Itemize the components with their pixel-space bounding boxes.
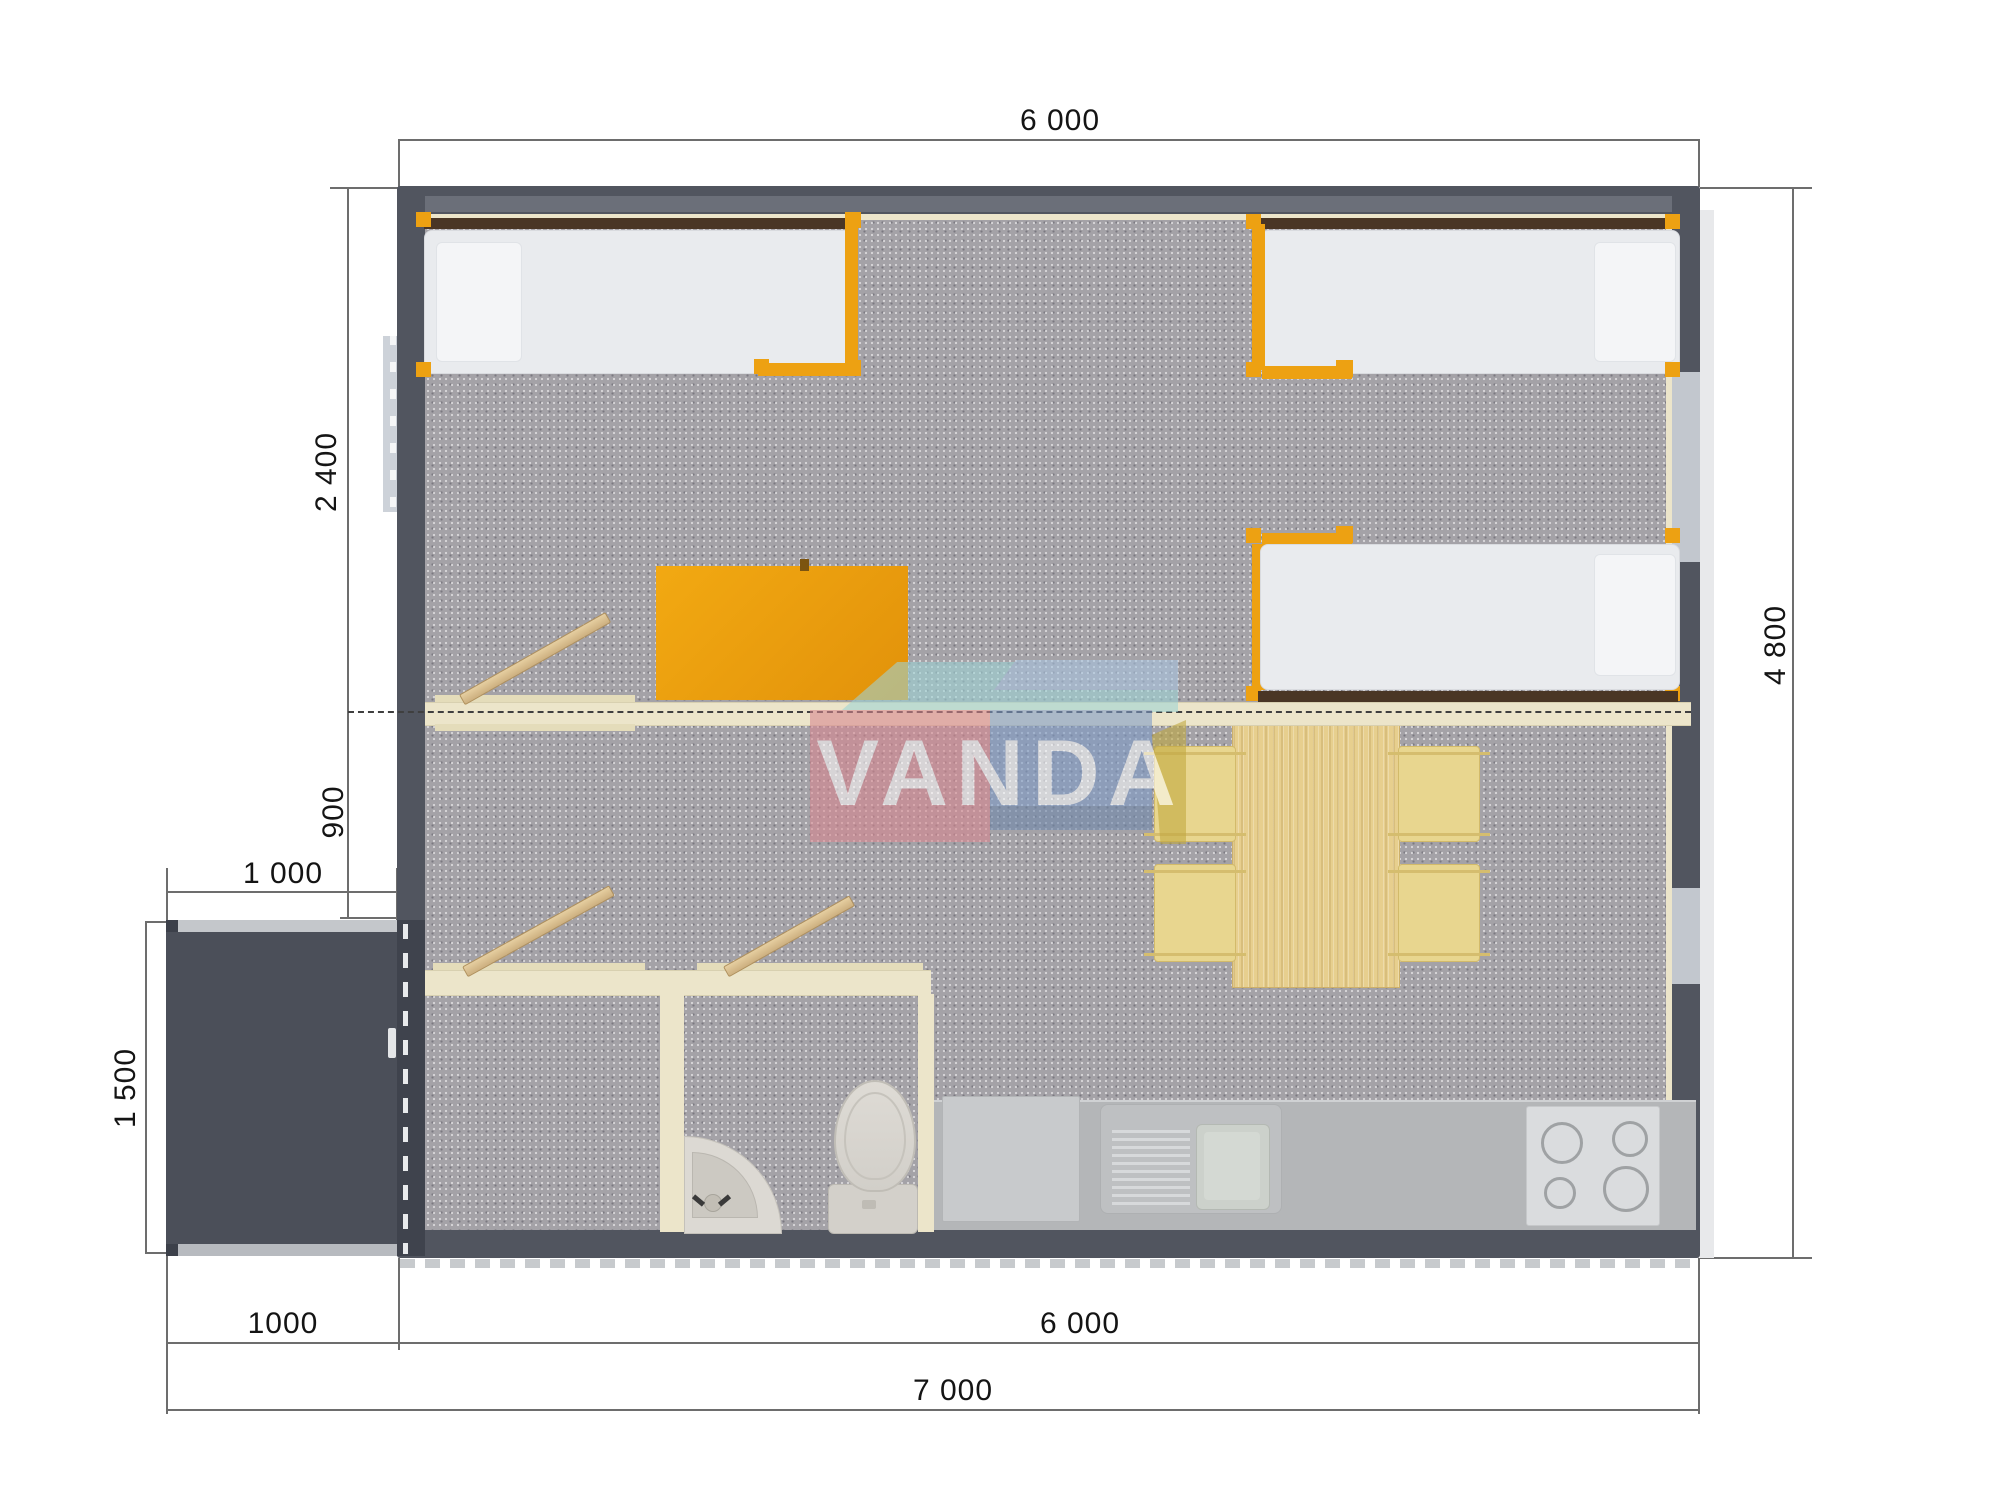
- dim-label-porch-width-bottom: 1000: [218, 1307, 348, 1341]
- dim-label-building-depth: 4 800: [1759, 580, 1793, 710]
- stove-burner-tr: [1612, 1121, 1648, 1157]
- bed2-post-bl: [1246, 362, 1261, 377]
- porch-top-step: [166, 920, 400, 932]
- dining-chair-4: [1398, 864, 1480, 962]
- dim-line-bottom-first: [167, 1342, 1700, 1344]
- dim-label-top-width: 6 000: [995, 104, 1125, 138]
- dim-label-porch-depth: 1 500: [109, 1023, 143, 1153]
- watermark-lightblue-band: [994, 660, 1178, 690]
- floor-plan-canvas: 6 000 2 400 900 1 000 1 500 4 800 1000 6…: [0, 0, 2000, 1502]
- dim-label-bedroom-depth: 2 400: [310, 407, 344, 537]
- bed3-post-tr: [1665, 528, 1680, 543]
- stove-burner-large-tl: [1541, 1122, 1583, 1164]
- dim-ext-porch-top-left: [166, 868, 168, 922]
- interior-wall-b: [425, 970, 931, 996]
- toilet-flush-button: [862, 1200, 876, 1209]
- entrance-door-handle: [388, 1028, 396, 1058]
- bed2-pillow: [1594, 242, 1676, 362]
- dining-chair-2: [1154, 864, 1236, 962]
- entrance-sliding-door-dashes: [403, 924, 408, 1254]
- bed2-rail-left: [1252, 224, 1265, 370]
- dim-ext-left-top: [330, 187, 398, 189]
- window-right-wall-lower: [1670, 888, 1700, 984]
- dim-line-bottom-total-7000: [167, 1409, 1700, 1411]
- building-shadow: [1700, 210, 1714, 1258]
- wardrobe-handle: [800, 559, 809, 571]
- sink-basin-inner: [1204, 1132, 1260, 1200]
- bottom-wall-cladding-dashes: [400, 1259, 1700, 1268]
- dim-label-total-width: 7 000: [888, 1374, 1018, 1408]
- top-wall-ledge: [425, 196, 1672, 212]
- interior-wall-a-rail-bottom: [435, 724, 635, 731]
- dim-line-porch-top-1000: [167, 891, 398, 893]
- bed1-post-rail-end: [754, 359, 769, 374]
- dim-ext-right-top: [1700, 187, 1812, 189]
- bed1-rail-bottom: [758, 363, 858, 376]
- bed1-headboard: [424, 218, 854, 229]
- bed1-pillow: [436, 242, 522, 362]
- bathroom-west-wall: [660, 994, 684, 1232]
- porch-corner-post-top: [166, 920, 178, 932]
- dim-ext-left-bottom: [340, 917, 400, 919]
- kitchen-cabinet-module: [942, 1096, 1080, 1222]
- dim-ext-bottom-porch-joint: [398, 1258, 400, 1350]
- vanda-watermark-logo: VANDA: [808, 660, 1192, 846]
- left-wall-cladding-dashes: [390, 200, 396, 912]
- entrance-door-wall: [397, 920, 425, 1256]
- dim-ext-top-right: [1698, 139, 1700, 187]
- dining-table: [1232, 724, 1400, 988]
- dim-line-porch-left-1500: [145, 922, 147, 1254]
- bed1-post-tl: [416, 212, 431, 227]
- bed1-post-bl: [416, 362, 431, 377]
- dining-chair-3: [1398, 746, 1480, 842]
- bed3-post-tl: [1246, 528, 1261, 543]
- dim-label-porch-width: 1 000: [218, 857, 348, 891]
- porch-corner-post-bottom: [166, 1244, 178, 1256]
- bed3-post-rail-end: [1336, 526, 1353, 543]
- toilet-seat-ring: [844, 1092, 906, 1180]
- bed3-headboard: [1258, 691, 1678, 702]
- bed2-post-br: [1665, 362, 1680, 377]
- stove-burner-small-bl: [1544, 1177, 1576, 1209]
- bed2-post-tr: [1665, 214, 1680, 229]
- porch-bottom-step: [166, 1244, 400, 1256]
- sink-drainboard-ribs: [1112, 1130, 1190, 1206]
- porch-floor: [166, 920, 400, 1256]
- bed2-headboard: [1258, 218, 1678, 229]
- bed1-rail-right: [845, 222, 858, 368]
- watermark-text: VANDA: [808, 718, 1192, 828]
- bed3-pillow: [1594, 554, 1676, 676]
- bed1-post-br: [845, 360, 861, 376]
- dim-line-top-6000: [399, 139, 1700, 141]
- dim-label-building-width: 6 000: [1015, 1307, 1145, 1341]
- dim-ext-right-bottom: [1700, 1257, 1812, 1259]
- dim-ext-bottom-far-left: [166, 1256, 168, 1414]
- bed2-post-rail-end: [1336, 360, 1353, 377]
- dim-ext-bottom-right: [1698, 1258, 1700, 1414]
- dim-line-right-4800: [1792, 188, 1794, 1259]
- stove-burner-large-br: [1603, 1166, 1649, 1212]
- dim-ext-top-left: [398, 139, 400, 187]
- bathroom-east-wall: [918, 994, 934, 1232]
